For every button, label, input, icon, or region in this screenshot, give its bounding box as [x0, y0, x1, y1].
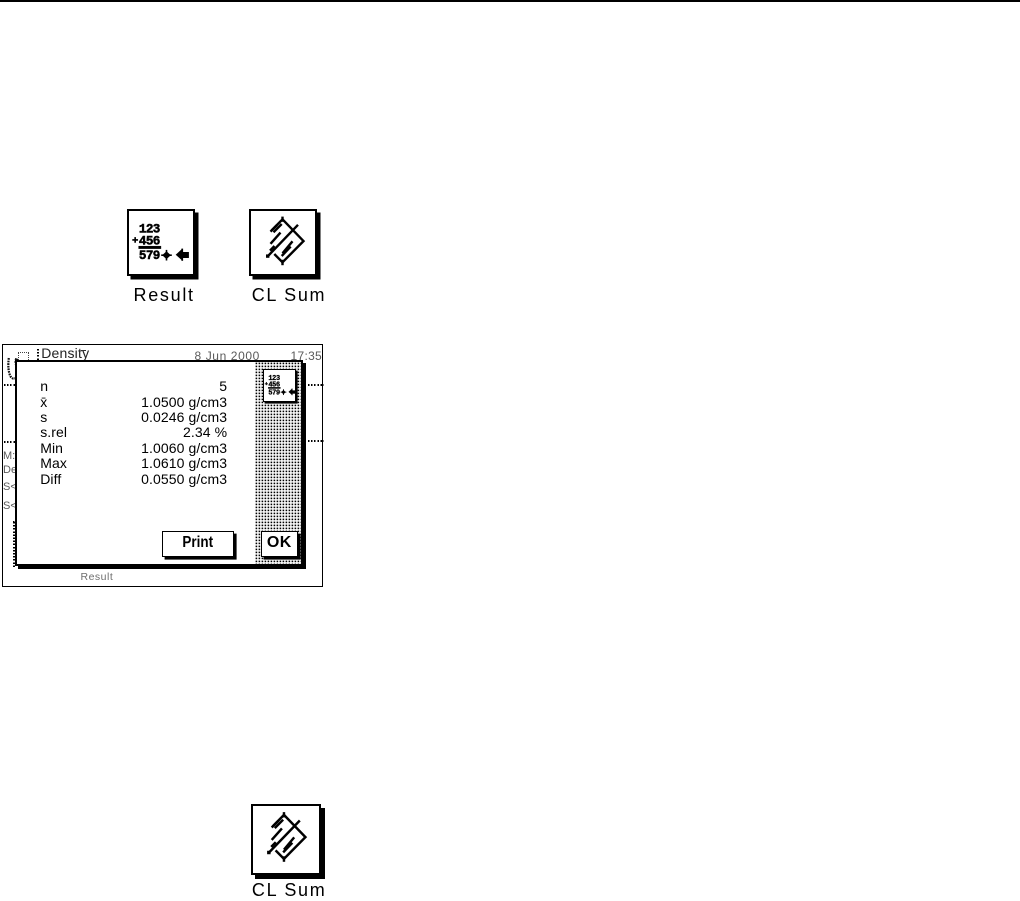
svg-text:579: 579: [139, 249, 160, 263]
svg-text:+: +: [132, 235, 138, 247]
svg-text:579: 579: [268, 390, 280, 398]
